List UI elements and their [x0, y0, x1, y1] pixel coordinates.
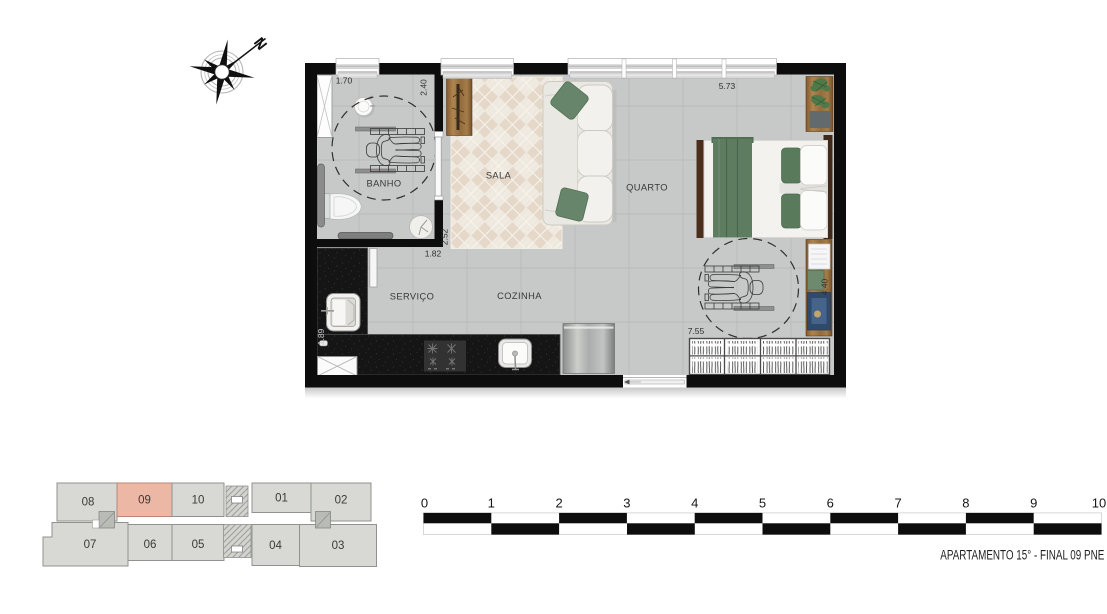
svg-text:07: 07: [84, 539, 97, 551]
svg-text:SALA: SALA: [486, 171, 512, 181]
svg-text:7: 7: [894, 496, 901, 511]
svg-text:0: 0: [421, 496, 428, 511]
svg-text:7.55: 7.55: [688, 326, 705, 336]
svg-text:4.40: 4.40: [820, 278, 830, 295]
svg-text:8: 8: [962, 496, 969, 511]
svg-text:06: 06: [144, 539, 157, 551]
svg-text:COZINHA: COZINHA: [497, 291, 542, 301]
svg-text:2.52: 2.52: [440, 228, 450, 245]
svg-text:2.40: 2.40: [419, 79, 429, 96]
svg-text:4: 4: [691, 496, 698, 511]
svg-text:1.70: 1.70: [336, 76, 353, 86]
svg-text:2: 2: [555, 496, 562, 511]
svg-text:SERVIÇO: SERVIÇO: [390, 292, 434, 302]
svg-text:10: 10: [192, 495, 205, 507]
svg-text:1.89: 1.89: [316, 328, 326, 345]
svg-text:10: 10: [1092, 496, 1106, 511]
svg-text:5.73: 5.73: [719, 81, 736, 91]
svg-text:3: 3: [623, 496, 630, 511]
svg-text:08: 08: [82, 497, 95, 509]
svg-text:5: 5: [759, 496, 766, 511]
svg-text:02: 02: [335, 495, 348, 507]
svg-text:9: 9: [1030, 496, 1037, 511]
svg-text:BANHO: BANHO: [366, 179, 401, 189]
svg-text:1.82: 1.82: [425, 249, 442, 259]
svg-text:09: 09: [138, 495, 151, 507]
svg-text:APARTAMENTO 15° - FINAL 09 PNE: APARTAMENTO 15° - FINAL 09 PNE: [940, 548, 1104, 563]
svg-text:QUARTO: QUARTO: [626, 183, 668, 193]
svg-text:05: 05: [192, 539, 205, 551]
svg-text:01: 01: [275, 493, 288, 505]
svg-text:04: 04: [269, 540, 282, 552]
svg-text:1: 1: [488, 496, 495, 511]
svg-text:6: 6: [827, 496, 834, 511]
svg-text:03: 03: [332, 540, 345, 552]
